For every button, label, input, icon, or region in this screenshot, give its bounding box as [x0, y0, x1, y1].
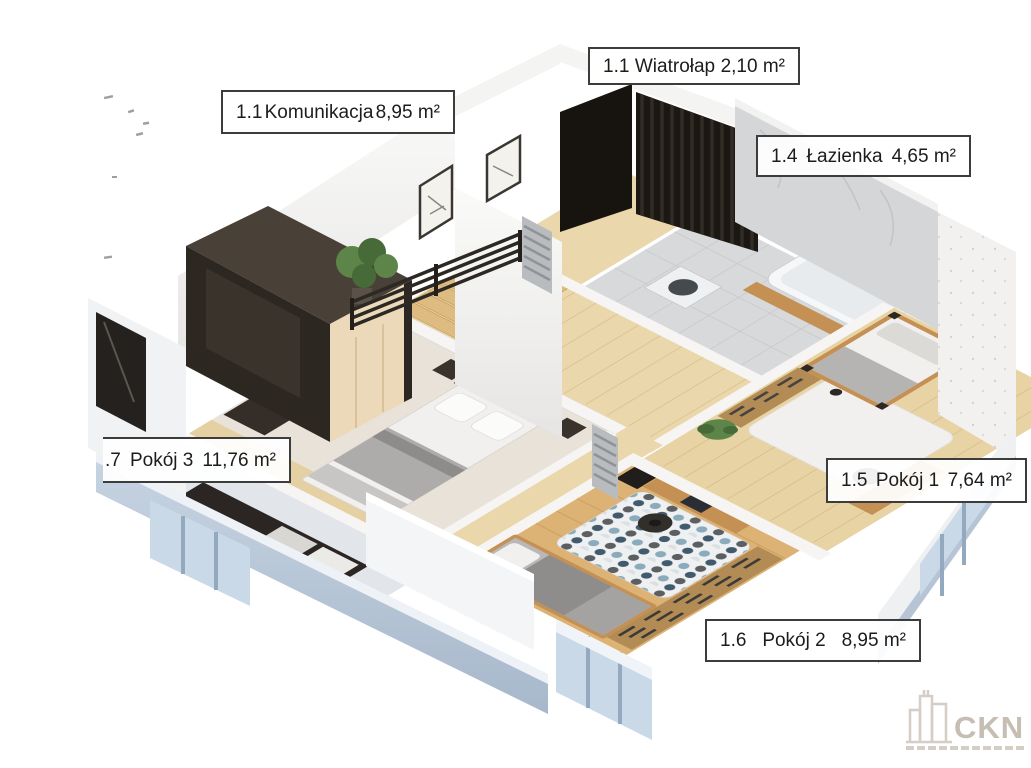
logo-tagline — [906, 746, 1026, 750]
logo-brand-text: CKN — [954, 710, 1024, 746]
room-name: Łazienka — [806, 147, 882, 166]
room-label-pokoj1: 1.5 Pokój 1 7,64 m² — [826, 458, 1027, 503]
floor-plan-page: 1.1 Wiatrołap 2,10 m² 1.1 Komunikacja 8,… — [0, 0, 1031, 768]
room-area: 8,95 m² — [842, 631, 906, 650]
entry-door — [560, 84, 632, 232]
room-number: .7 — [105, 451, 121, 470]
room-label-lazienka: 1.4 Łazienka 4,65 m² — [756, 135, 971, 177]
picture-frame — [487, 136, 520, 201]
room-name: Wiatrołap — [635, 57, 715, 76]
room-label-komunikacja: 1.1 Komunikacja 8,95 m² — [221, 90, 455, 134]
room-label-wiatrolap: 1.1 Wiatrołap 2,10 m² — [588, 47, 800, 85]
room-number: 1.1 — [236, 103, 262, 122]
room-label-pokoj3: .7 Pokój 3 11,76 m² — [103, 437, 291, 483]
image-artifacts — [104, 95, 149, 259]
room-area: 8,95 m² — [376, 103, 440, 122]
room-name: Pokój 3 — [130, 451, 193, 470]
room-area: 7,64 m² — [948, 471, 1012, 490]
room-area: 4,65 m² — [892, 147, 956, 166]
room-number: 1.4 — [771, 147, 797, 166]
room-label-pokoj2: 1.6 Pokój 2 8,95 m² — [705, 619, 921, 662]
room-area: 2,10 m² — [721, 57, 785, 76]
agency-logo: CKN — [902, 686, 1030, 756]
room-name: Pokój 1 — [876, 471, 939, 490]
room-name: Komunikacja — [265, 103, 374, 122]
logo-buildings-icon — [904, 688, 954, 746]
room-number: 1.5 — [841, 471, 867, 490]
room-area: 11,76 m² — [202, 451, 276, 470]
room-number: 1.6 — [720, 631, 746, 650]
room-name: Pokój 2 — [762, 631, 825, 650]
room-number: 1.1 — [603, 57, 629, 76]
